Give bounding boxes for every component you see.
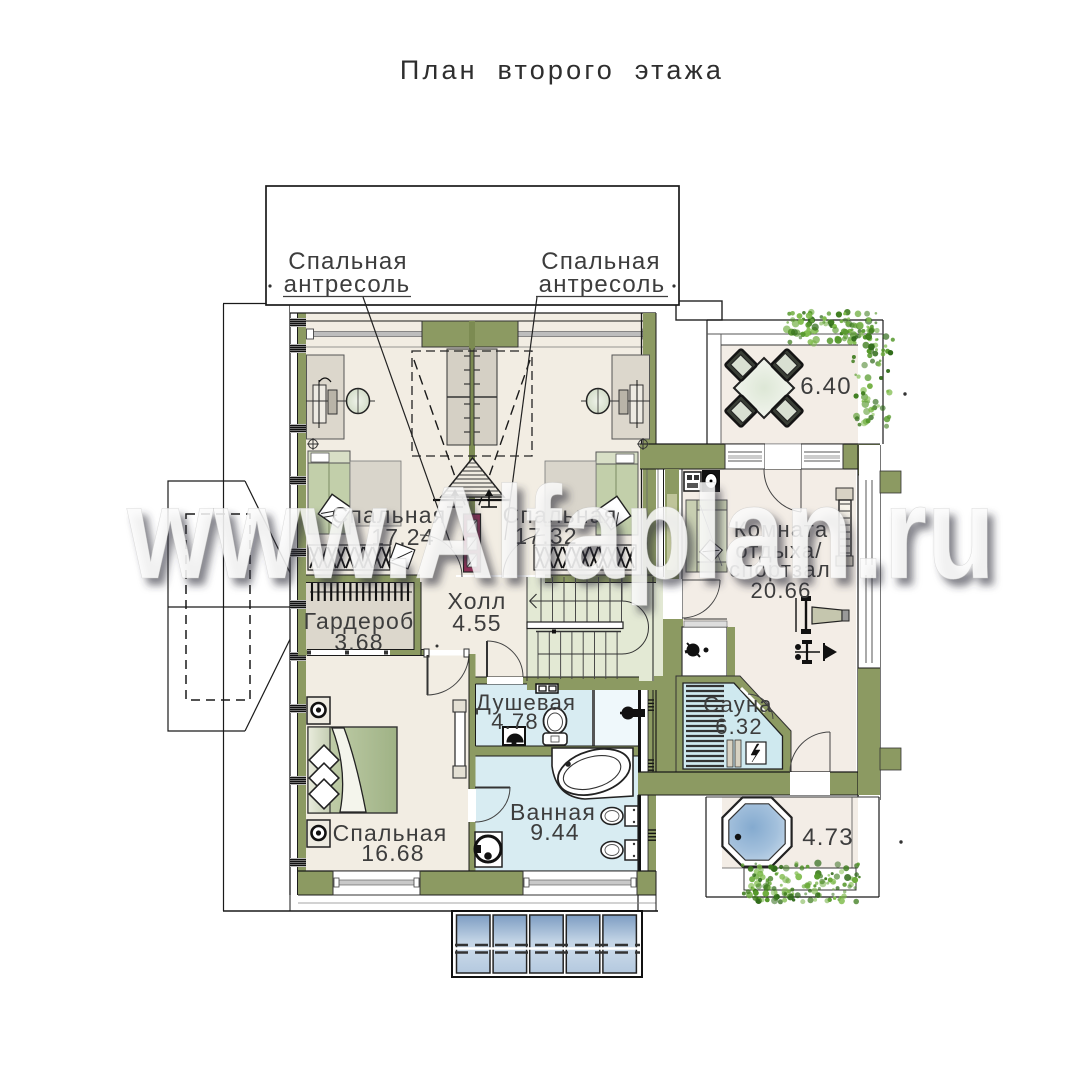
svg-text:9.44: 9.44 <box>530 819 580 845</box>
svg-text:антресоль: антресоль <box>284 271 411 298</box>
svg-text:6.32: 6.32 <box>715 714 763 739</box>
svg-text:www.Alfaplan.ru: www.Alfaplan.ru <box>126 459 995 606</box>
svg-text:4.78: 4.78 <box>491 709 539 734</box>
svg-text:4.55: 4.55 <box>452 610 502 636</box>
svg-text:4.73: 4.73 <box>802 824 854 851</box>
svg-text:План второго этажа: План второго этажа <box>400 55 724 85</box>
svg-text:16.68: 16.68 <box>361 840 425 866</box>
svg-text:3.68: 3.68 <box>334 629 384 655</box>
svg-text:6.40: 6.40 <box>800 373 852 400</box>
svg-text:антресоль: антресоль <box>539 271 666 298</box>
